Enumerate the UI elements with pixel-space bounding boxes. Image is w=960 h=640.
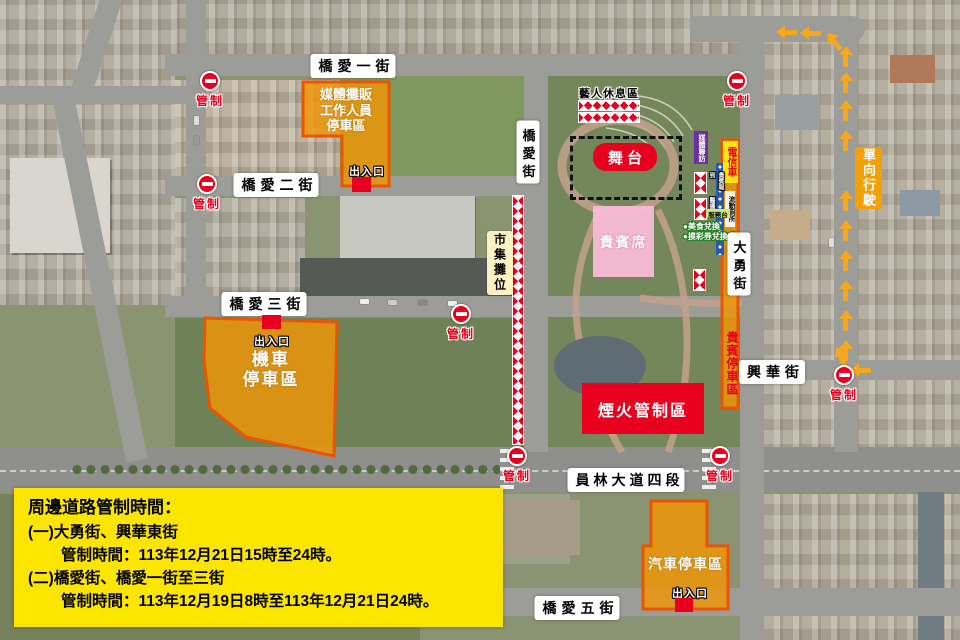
one-way-tag: 單向行駛 [855, 147, 882, 209]
telecom-vehicle-label: 電信車 [723, 147, 738, 177]
one-way-arrow-icon [843, 258, 848, 271]
one-way-label: 單向行駛 [859, 148, 878, 208]
street-label-qiaoai-2: 橋愛二街 [234, 173, 319, 197]
control-label: 管制 [830, 386, 858, 403]
notice-item2-road: (二)橋愛街、橋愛一街至三街 [28, 567, 489, 590]
one-way-arrow-icon [808, 31, 821, 36]
no-entry-icon [710, 446, 730, 466]
no-entry-icon [727, 71, 747, 91]
street-label-dayong: 大勇街 [728, 233, 751, 296]
street-label-xinghua: 興華街 [739, 360, 805, 384]
control-label: 管制 [196, 92, 224, 109]
street-label-qiaoai-1: 橋愛一街 [311, 54, 396, 78]
artist-tent-row [578, 112, 640, 123]
fireworks-control-zone: 煙火管制區 [582, 383, 704, 434]
vip-seating-label: 貴賓席 [600, 232, 648, 252]
vip-parking-label: 貴賓停車區 [722, 316, 739, 410]
control-label: 管制 [447, 325, 475, 342]
vip-checkin-label: 貴賓報到 [707, 172, 725, 194]
one-way-arrow-icon [843, 318, 848, 331]
artist-tent-row [578, 100, 640, 111]
no-entry-icon [834, 365, 854, 385]
fireworks-control-label: 煙火管制區 [598, 397, 688, 421]
no-entry-icon [507, 446, 527, 466]
one-way-arrow-icon [858, 368, 871, 373]
one-way-arrow-icon [843, 198, 848, 211]
media-parking-label: 媒體攤販 工作人員 停車區 [303, 87, 389, 134]
notice-item2-time: 管制時間：113年12月19日8時至113年12月21日24時。 [28, 590, 489, 613]
street-label-qiaoai: 橋愛街 [517, 121, 540, 184]
service-desk-tag: 服務台 [706, 209, 730, 218]
moto-parking-label: 機車 停車區 [205, 350, 337, 391]
street-label-qiaoai-5: 橋愛五街 [535, 596, 620, 620]
one-way-arrow-icon [843, 108, 848, 121]
entrance-label-moto: 出入口 [254, 333, 290, 349]
control-label: 管制 [503, 467, 531, 484]
one-way-arrow-icon [843, 80, 848, 93]
one-way-arrow-icon [784, 30, 797, 35]
market-stalls-tag: 市集攤位 [487, 231, 513, 295]
vip-checkin-tent [694, 172, 707, 194]
entrance-gate-moto [262, 315, 281, 329]
vip-seating-area: 貴賓席 [593, 206, 654, 277]
artist-rest-label: 藝人休息區 [579, 85, 639, 101]
no-entry-icon [200, 71, 220, 91]
car-parking-label: 汽車停車區 [643, 556, 728, 573]
stage-box: 舞台 [593, 143, 657, 171]
media-interview-tag: 媒體聯訪 [694, 131, 708, 164]
market-stall-strip [512, 195, 524, 445]
entrance-gate-car [675, 598, 693, 612]
stage-label: 舞台 [604, 147, 646, 168]
entrance-gate-media [352, 177, 371, 192]
street-label-qiaoai-3: 橋愛三街 [222, 292, 307, 316]
service-tent [693, 269, 706, 291]
media-interview-label: 媒體聯訪 [696, 134, 706, 162]
notice-item1-time: 管制時間：113年12月21日15時至24時。 [28, 544, 489, 567]
no-entry-icon [197, 174, 217, 194]
one-way-arrow-icon [843, 288, 848, 301]
notice-title: 周邊道路管制時間： [28, 495, 489, 521]
street-label-yuanlin-blvd: 員林大道四段 [568, 468, 685, 492]
control-label: 管制 [723, 92, 751, 109]
one-way-arrow-icon [843, 138, 848, 151]
market-stalls-label: 市集攤位 [492, 233, 509, 293]
one-way-arrow-icon [843, 228, 848, 241]
traffic-control-notice: 周邊道路管制時間： (一)大勇街、興華東街 管制時間：113年12月21日15時… [14, 488, 503, 627]
one-way-arrow-icon [843, 54, 848, 67]
telecom-vehicle-tag: 電信車 [723, 141, 738, 183]
control-label: 管制 [706, 467, 734, 484]
control-label: 管制 [193, 195, 221, 212]
no-entry-icon [451, 304, 471, 324]
service-desk-label: 服務台 [708, 209, 728, 219]
notice-item1-road: (一)大勇街、興華東街 [28, 521, 489, 544]
